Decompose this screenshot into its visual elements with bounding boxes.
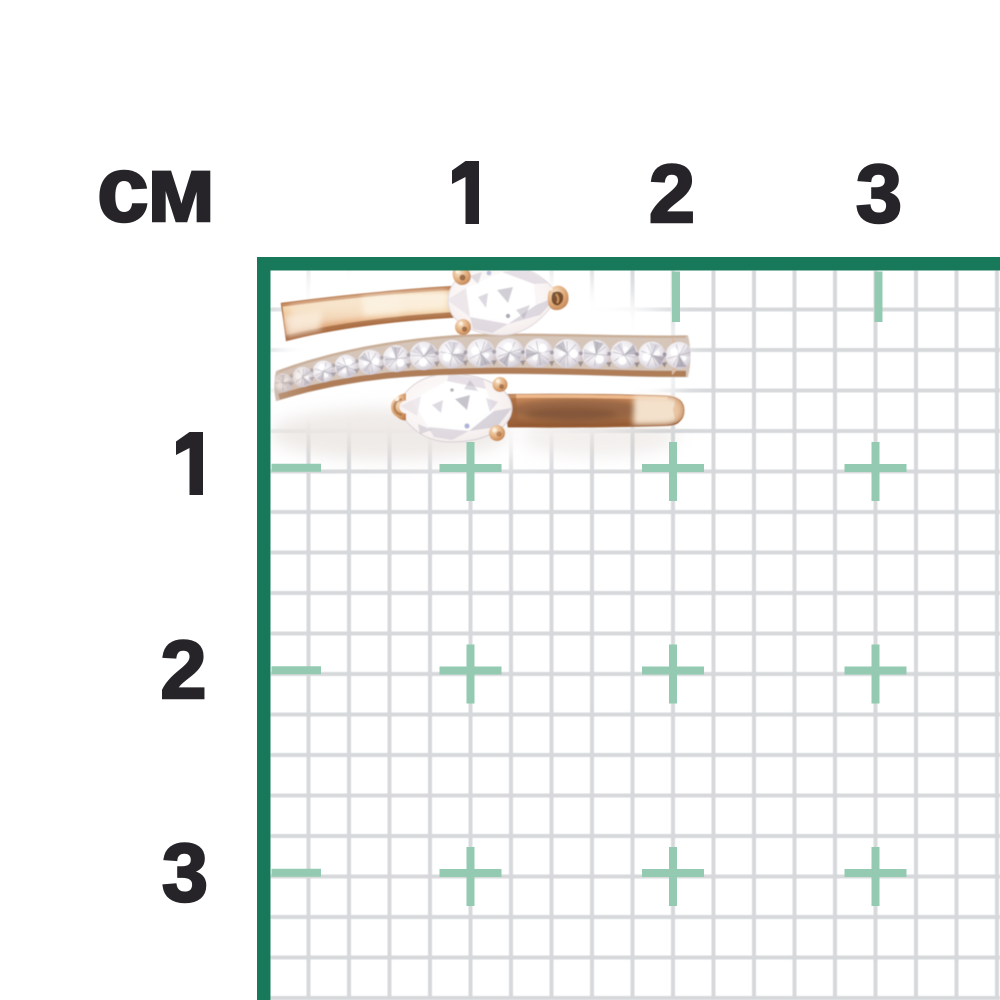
svg-text:см: см: [97, 137, 214, 241]
svg-text:2: 2: [160, 623, 206, 716]
svg-text:3: 3: [162, 826, 208, 919]
svg-text:2: 2: [649, 147, 695, 240]
svg-text:3: 3: [856, 147, 902, 240]
